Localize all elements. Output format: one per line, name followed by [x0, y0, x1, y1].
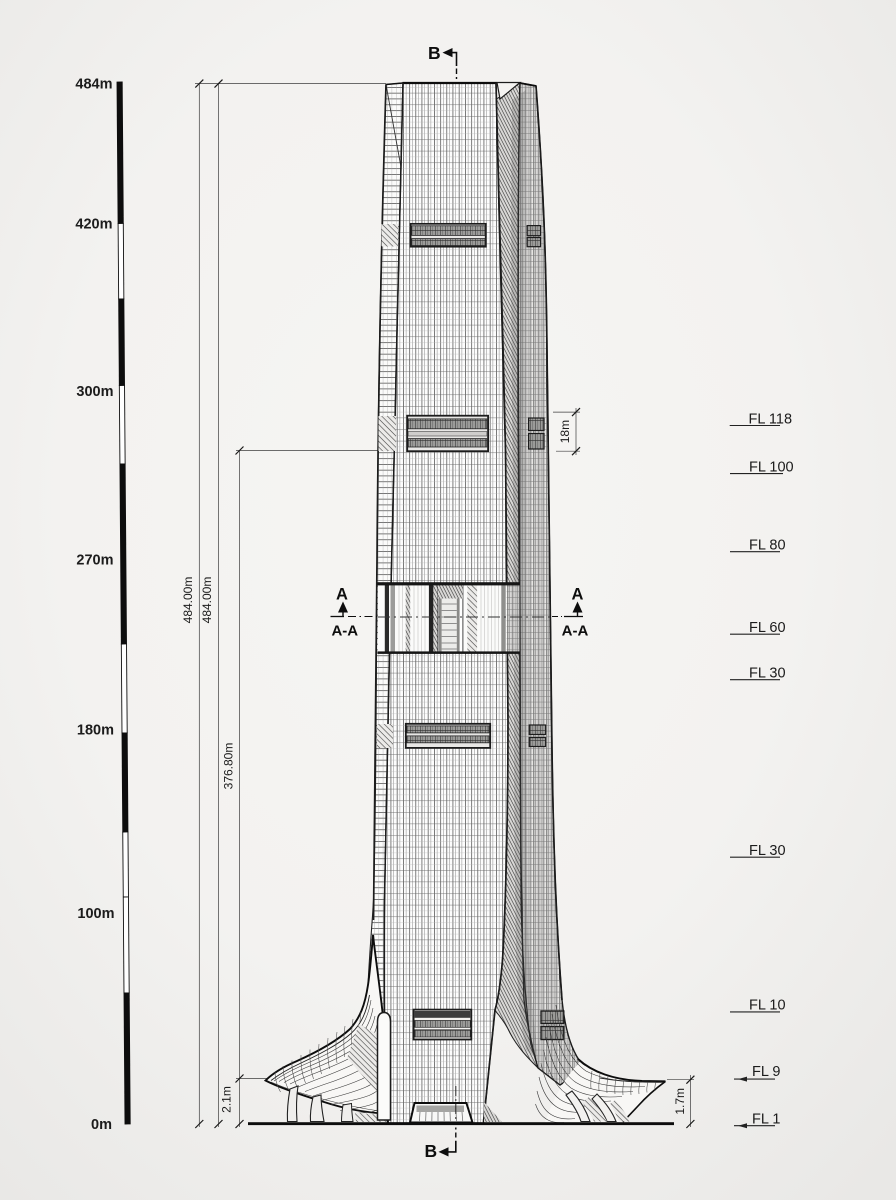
svg-text:FL 30: FL 30 — [749, 843, 786, 859]
svg-text:484.00m: 484.00m — [181, 577, 195, 624]
svg-text:FL 30: FL 30 — [749, 666, 786, 682]
svg-text:420m: 420m — [75, 217, 112, 233]
svg-text:484.00m: 484.00m — [200, 577, 214, 624]
svg-text:270m: 270m — [76, 553, 113, 569]
svg-text:B: B — [425, 1141, 438, 1161]
svg-text:376.80m: 376.80m — [222, 743, 236, 790]
svg-text:A: A — [572, 586, 584, 604]
svg-text:180m: 180m — [77, 723, 114, 739]
svg-text:FL 10: FL 10 — [749, 998, 786, 1014]
svg-text:FL 100: FL 100 — [749, 459, 794, 475]
svg-text:484m: 484m — [75, 77, 112, 93]
svg-text:FL 80: FL 80 — [749, 538, 786, 554]
svg-text:A-A: A-A — [331, 623, 358, 640]
svg-text:2.1m: 2.1m — [220, 1086, 234, 1113]
svg-text:1.7m: 1.7m — [673, 1088, 687, 1115]
svg-text:0m: 0m — [91, 1117, 112, 1133]
svg-text:FL 60: FL 60 — [749, 620, 786, 636]
svg-text:100m: 100m — [77, 906, 114, 922]
svg-text:FL 1: FL 1 — [752, 1112, 780, 1128]
svg-text:B: B — [428, 43, 441, 63]
svg-text:A-A: A-A — [562, 623, 589, 640]
svg-text:FL 9: FL 9 — [752, 1064, 780, 1080]
svg-text:300m: 300m — [76, 384, 113, 400]
svg-text:18m: 18m — [558, 420, 572, 443]
svg-text:A: A — [336, 586, 348, 604]
